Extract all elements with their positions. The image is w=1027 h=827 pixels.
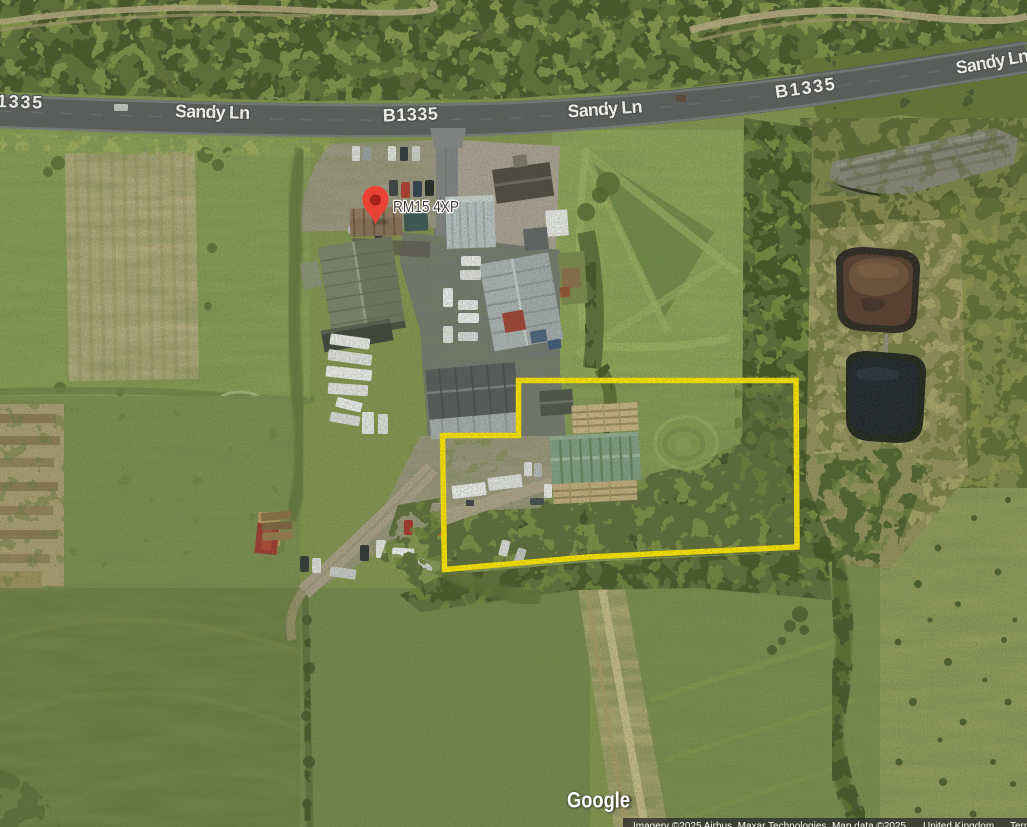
svg-text:Imagery ©2025 Airbus, Maxar Te: Imagery ©2025 Airbus, Maxar Technologies… [633,821,906,827]
svg-text:RM15 4XP: RM15 4XP [393,199,459,216]
svg-text:United Kingdom: United Kingdom [923,821,994,827]
svg-text:Google: Google [567,788,630,813]
svg-text:Terms: Terms [1010,821,1027,827]
